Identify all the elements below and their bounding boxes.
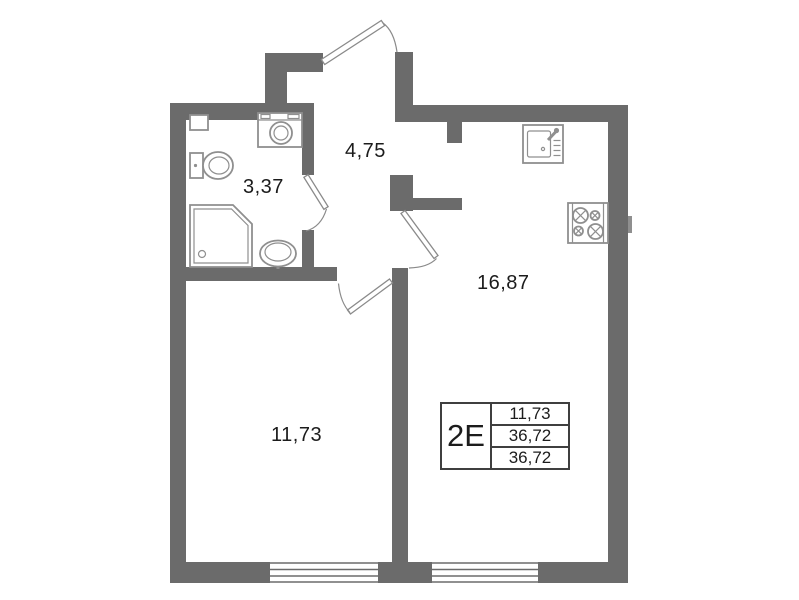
bathroom-door-leaf [304, 175, 328, 210]
kitchen-area-label: 16,87 [477, 272, 530, 295]
kitchen-door-arc [409, 259, 437, 269]
shower-icon [190, 205, 252, 267]
unit-type-label: 2Е [442, 404, 492, 468]
unit-legend-table: 2Е 11,73 36,72 36,72 [440, 402, 570, 470]
legend-overall-area-value: 36,72 [492, 448, 568, 468]
living-room-door [339, 279, 393, 314]
wall-bathroom-bottom [170, 267, 337, 281]
wall-kitchen-stub [447, 122, 462, 143]
wall-kitchen-top [395, 105, 628, 122]
bathroom-area-label: 3,37 [243, 176, 284, 199]
unit-legend-values: 11,73 36,72 36,72 [492, 404, 568, 468]
wall-bottom-center-pier [378, 562, 432, 583]
washing-machine-icon [258, 113, 302, 147]
window-right-opening [432, 562, 538, 583]
wall-room-divider [392, 268, 408, 562]
wall-hall-closet-horizontal [408, 198, 462, 210]
bathroom-door-arc [306, 209, 327, 231]
wall-entry-step-top [265, 53, 323, 72]
hall-area-label: 4,75 [345, 140, 386, 163]
legend-total-area-value: 36,72 [492, 426, 568, 448]
kitchen-sink-icon [523, 125, 563, 163]
wall-bottom-left-segment [170, 562, 270, 583]
legend-living-area-value: 11,73 [492, 404, 568, 426]
kitchen-door-leaf [401, 211, 438, 259]
stove-icon [568, 203, 608, 243]
wall-bathroom-right-upper [302, 110, 314, 175]
wall-exterior-right [608, 105, 628, 583]
entry-door-leaf [321, 21, 384, 65]
living-room-door-leaf [348, 279, 393, 314]
living-area-label: 11,73 [271, 424, 322, 447]
bathroom-sink-icon [260, 241, 296, 270]
vent-box-icon [190, 115, 208, 130]
kitchen-door [401, 211, 438, 269]
wall-bottom-right-segment [538, 562, 628, 583]
toilet-icon [190, 152, 233, 179]
bathroom-door [304, 175, 328, 231]
floor-plan: 3,37 4,75 16,87 11,73 2Е 11,73 36,72 36,… [0, 0, 799, 600]
entry-door-arc [383, 23, 397, 52]
window-right [432, 562, 538, 583]
floor-plan-drawing [0, 0, 799, 600]
living-room-door-arc [339, 284, 351, 313]
wall-exterior-left [170, 103, 186, 583]
entry-door [321, 21, 397, 65]
window-left-opening [270, 562, 378, 583]
window-left [270, 562, 378, 583]
